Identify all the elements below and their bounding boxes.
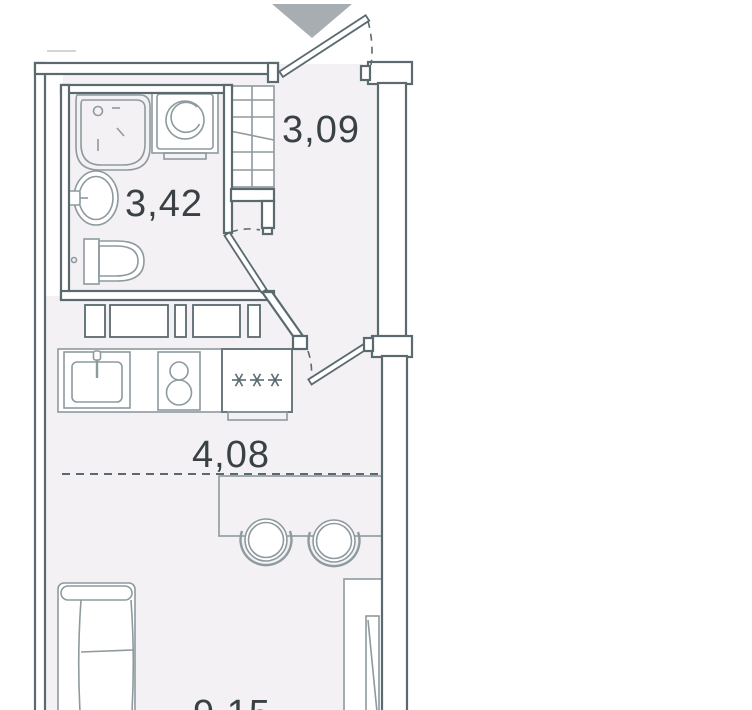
- bathroom-area-label: 3,42: [125, 183, 203, 225]
- room-door-jamb: [293, 336, 307, 349]
- wardrobe-icon: [344, 579, 384, 710]
- entrance-door-swing: [368, 21, 372, 65]
- floor-plan: 3,09 3,42 4,08 9,15: [0, 0, 752, 710]
- hallway-area-label: 3,09: [282, 109, 360, 151]
- fridge-icon: [222, 349, 292, 420]
- hallway-wardrobe-icon: [230, 86, 274, 187]
- washing-machine-icon: [152, 90, 218, 159]
- sofa-icon: [58, 583, 135, 710]
- kitchen-area-label: 4,08: [192, 434, 270, 476]
- living-area-label: 9,15: [193, 693, 271, 710]
- floor-plan-drawing: 3,09 3,42 4,08 9,15: [0, 0, 752, 710]
